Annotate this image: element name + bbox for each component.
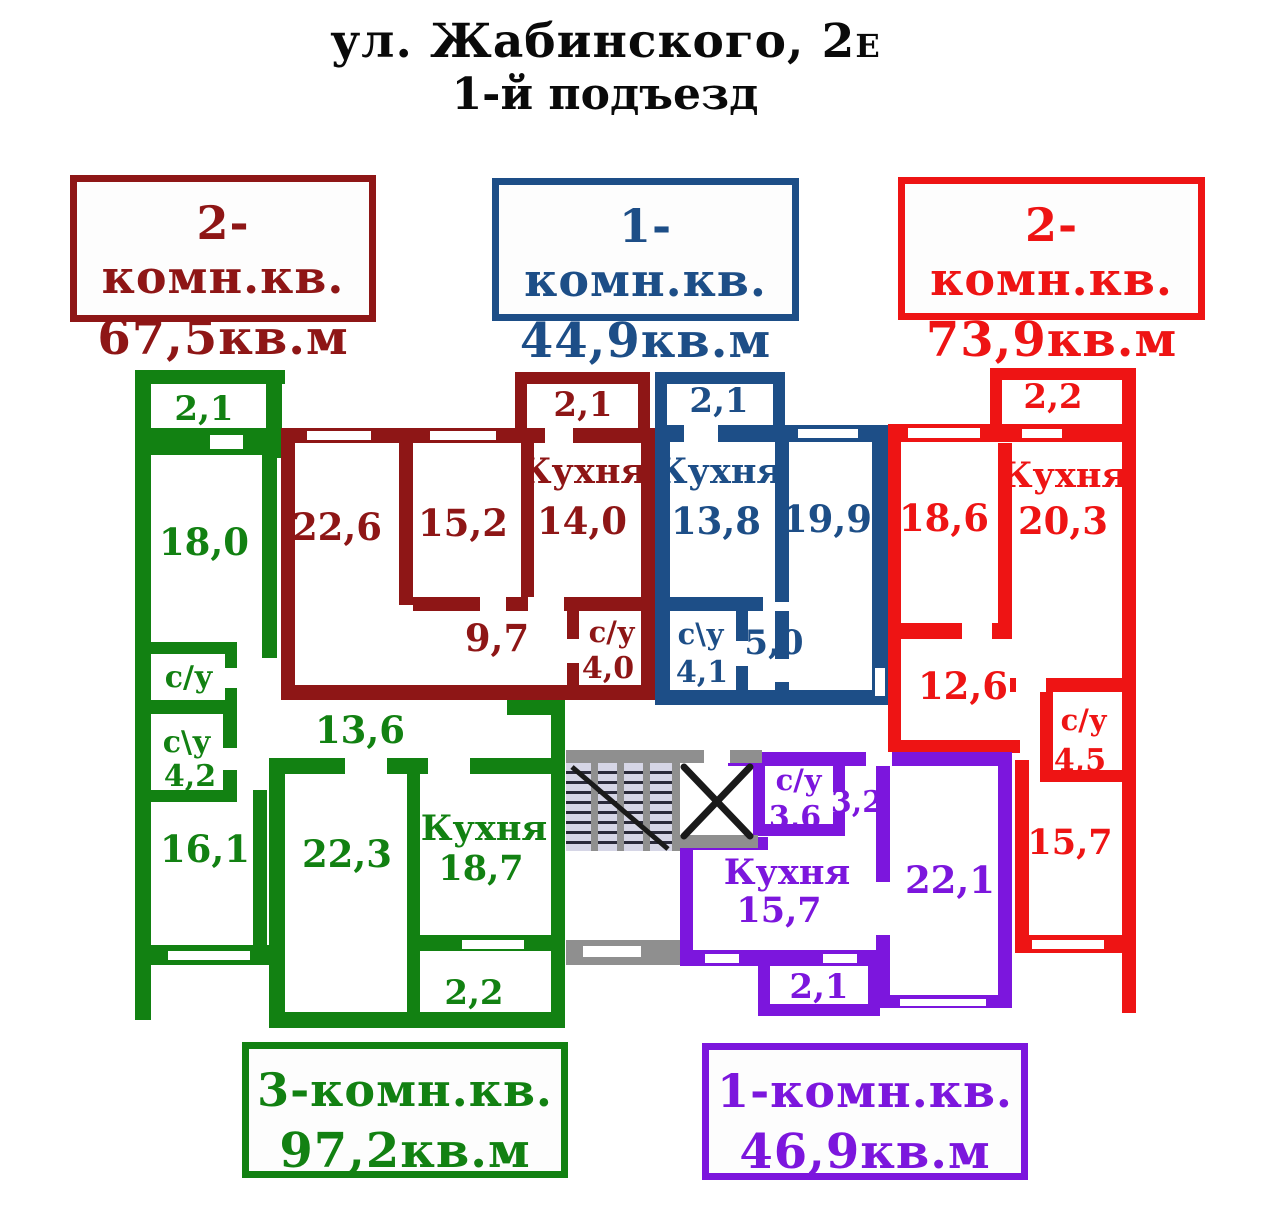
label-red-room-186: 18,6 xyxy=(899,496,989,540)
floor-plan-page: ул. Жабинского, 2Е 1-й подъезд 2-комн.кв… xyxy=(0,0,1280,1226)
label-green-hall-136: 13,6 xyxy=(315,708,405,752)
label-blue-wc: с\у xyxy=(678,617,725,651)
label-darkred-kitchen: Кухня xyxy=(520,451,647,492)
label-blue-balcony: 2,1 xyxy=(689,381,748,421)
label-darkred-room-152: 15,2 xyxy=(418,501,508,545)
label-blue-kitchen: Кухня xyxy=(656,451,783,492)
label-blue-hall-50: 5,0 xyxy=(744,623,803,663)
label-darkred-wc-area: 4,0 xyxy=(582,651,634,686)
label-red-kitchen: Кухня xyxy=(1001,455,1128,496)
label-green-room-180: 18,0 xyxy=(159,520,249,564)
label-blue-room-199: 19,9 xyxy=(782,497,872,541)
label-purple-wc-area: 3,6 xyxy=(769,800,821,835)
label-darkred-kitchen-area: 14,0 xyxy=(537,499,627,543)
label-purple-room-221: 22,1 xyxy=(905,858,995,902)
label-green-wc2: с\у xyxy=(163,725,211,760)
apartment-darkred: 2,1 22,6 15,2 Кухня 14,0 9,7 с/у 4,0 xyxy=(281,372,655,700)
label-green-balcony-top: 2,1 xyxy=(174,389,233,429)
label-purple-hall-32: 3,2 xyxy=(831,785,883,820)
label-darkred-room-226: 22,6 xyxy=(292,505,382,549)
label-purple-wc: с/у xyxy=(776,763,823,797)
label-red-kitchen-area: 20,3 xyxy=(1018,499,1108,543)
label-red-wc-area: 4,5 xyxy=(1054,743,1106,778)
label-red-room-157: 15,7 xyxy=(1027,822,1112,863)
label-green-kitchen-area: 18,7 xyxy=(438,848,523,889)
label-purple-balcony: 2,1 xyxy=(789,967,848,1007)
label-purple-kitchen-area: 15,7 xyxy=(736,890,821,931)
stairs-icon xyxy=(566,763,672,851)
label-green-balcony-bottom: 2,2 xyxy=(444,973,503,1013)
apartment-blue: 2,1 Кухня 13,8 19,9 с\у 4,1 5,0 xyxy=(655,372,890,705)
label-green-kitchen: Кухня xyxy=(421,808,548,849)
label-red-hall-126: 12,6 xyxy=(918,664,1008,708)
label-purple-kitchen: Кухня xyxy=(724,852,851,893)
label-green-room-223: 22,3 xyxy=(302,832,392,876)
label-darkred-hall-97: 9,7 xyxy=(465,616,529,660)
label-blue-wc-area: 4,1 xyxy=(676,655,728,690)
label-darkred-balcony: 2,1 xyxy=(553,385,612,425)
label-green-room-161: 16,1 xyxy=(160,827,250,871)
label-red-wc: с/у xyxy=(1061,703,1108,737)
label-darkred-wc: с/у xyxy=(589,615,636,649)
label-red-balcony: 2,2 xyxy=(1023,377,1082,417)
floor-plan-drawing: 2,1 18,0 с/у с\у 4,2 16,1 13,6 22,3 Кухн… xyxy=(0,0,1280,1226)
label-green-wc2-area: 4,2 xyxy=(164,759,216,794)
elevator-icon xyxy=(684,767,750,836)
label-blue-kitchen-area: 13,8 xyxy=(671,499,761,543)
label-green-wc-small: с/у xyxy=(165,660,213,695)
